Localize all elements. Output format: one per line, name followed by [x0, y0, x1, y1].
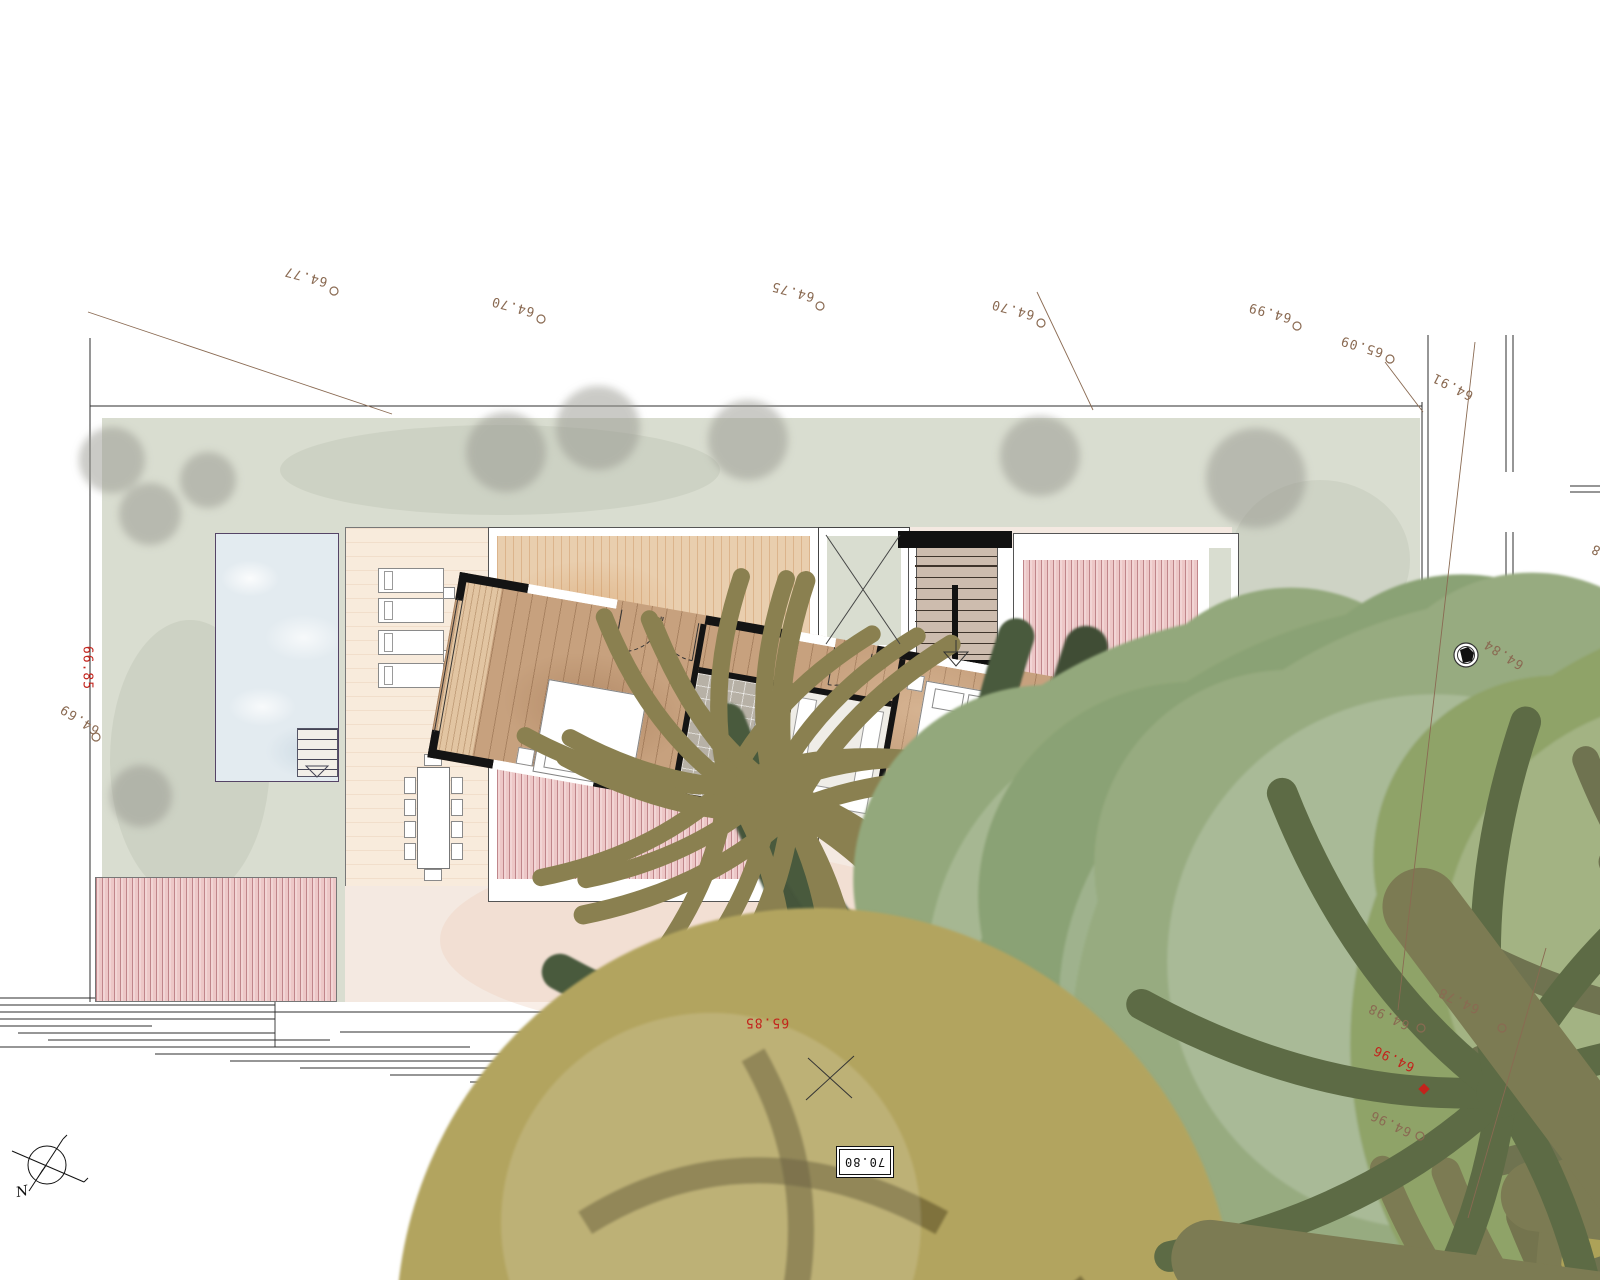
architectural-site-plan: 64.77 64.70 64.75 64.70 64.99 65.09 64.9…: [0, 0, 1600, 1280]
elevation-label: 65.85: [745, 1015, 789, 1030]
road-elevation-inner: 70.80: [839, 1149, 891, 1175]
elevation-label: 66.85: [80, 646, 95, 690]
courtyard-cross: [306, 535, 968, 777]
road-elevation-box: 70.80: [836, 1146, 894, 1178]
manhole-symbol: [1454, 643, 1478, 667]
road-elevation-label: 70.80: [844, 1155, 885, 1169]
flora-layer: [0, 0, 1600, 1280]
